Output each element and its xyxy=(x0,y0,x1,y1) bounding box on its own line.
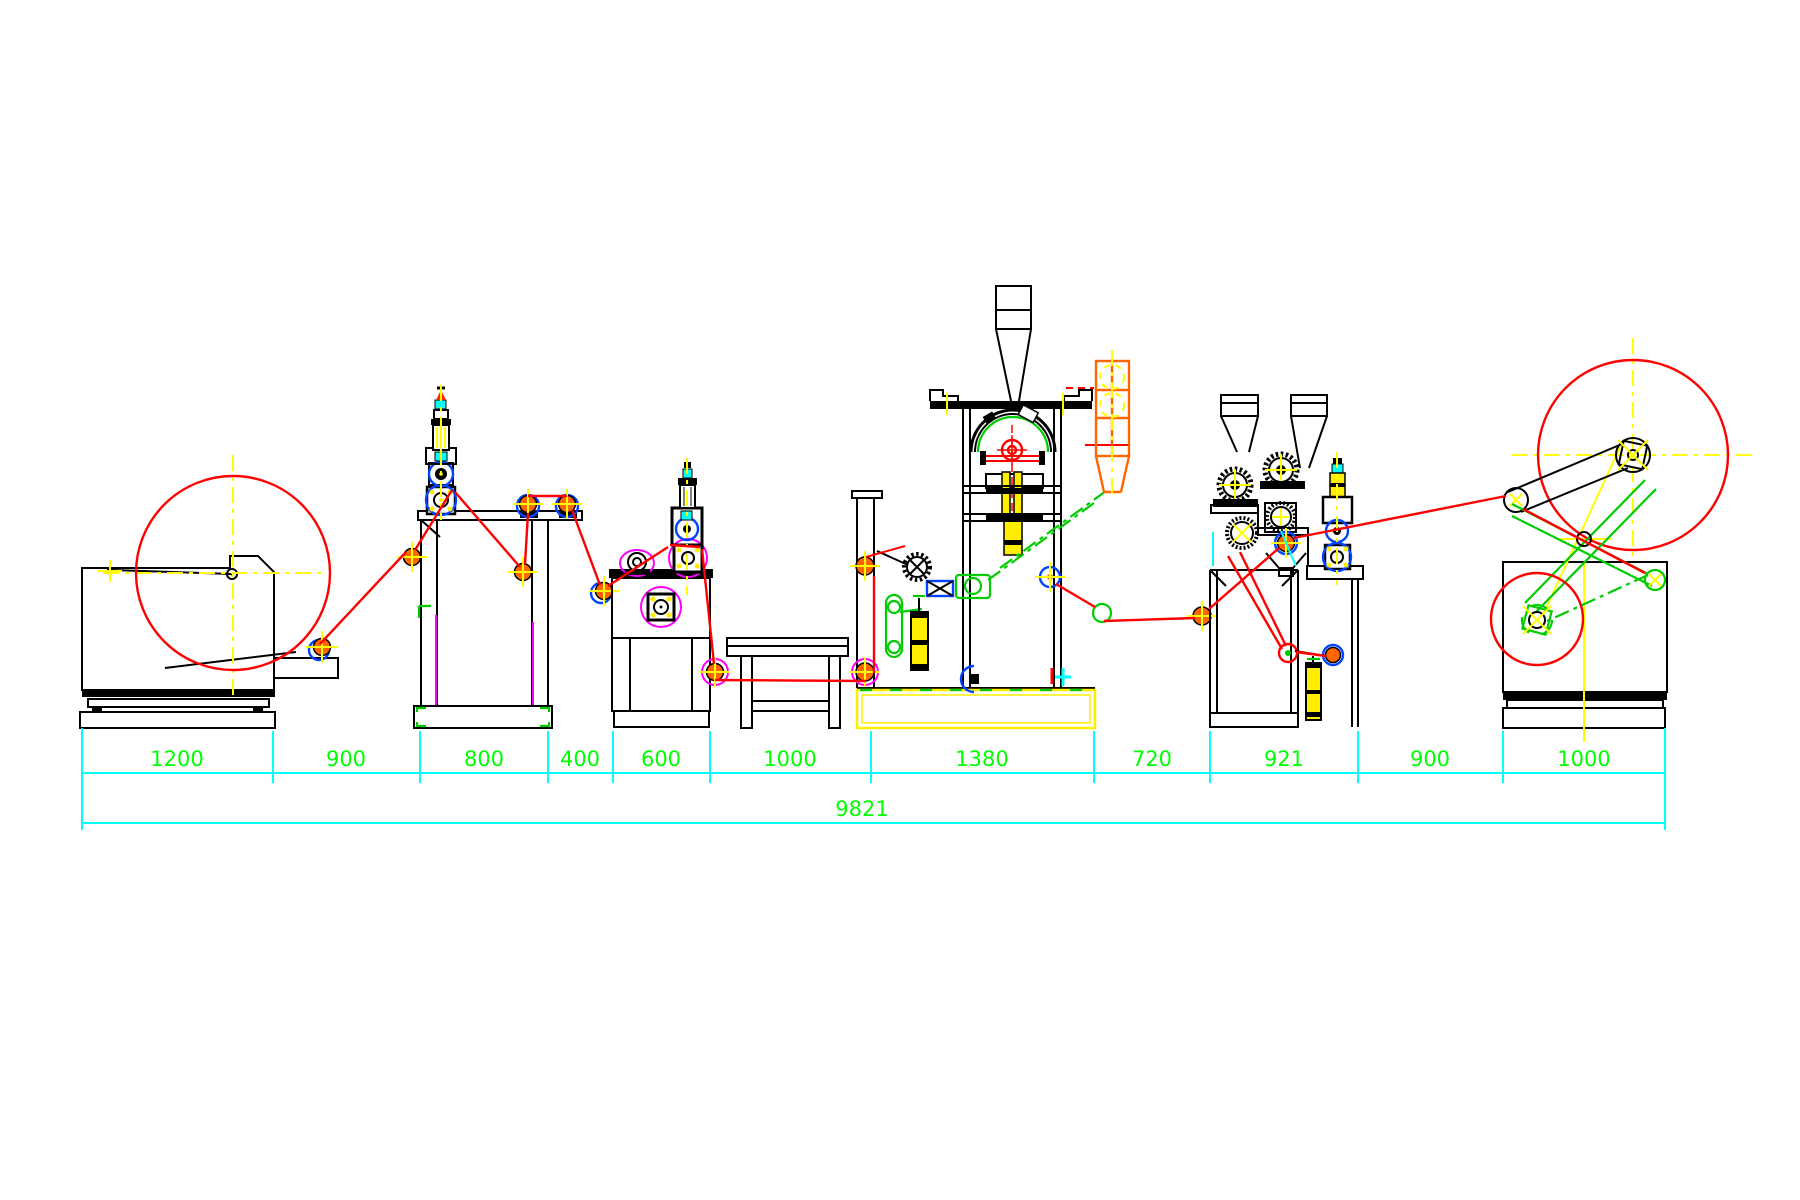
dim-label: 720 xyxy=(1132,747,1172,771)
extruder-motor-left xyxy=(1213,469,1258,507)
dim-label: 800 xyxy=(464,747,504,771)
dancer-mechanism xyxy=(886,595,928,670)
bag-forming-unit xyxy=(850,286,1128,728)
dim-label: 1200 xyxy=(150,747,203,771)
machine-base xyxy=(857,666,1095,728)
dim-label: 900 xyxy=(326,747,366,771)
dim-label: 1380 xyxy=(955,747,1008,771)
roller xyxy=(552,489,582,519)
roller xyxy=(850,657,880,687)
dim-label: 900 xyxy=(1410,747,1450,771)
turret-linkage xyxy=(1512,480,1665,622)
dim-label: 400 xyxy=(560,747,600,771)
dim-label: 1000 xyxy=(1557,747,1610,771)
roller xyxy=(700,657,730,687)
production-line-drawing: 1200 900 800 400 600 1000 1380 720 921 9… xyxy=(0,0,1800,1200)
corona-treater-frame xyxy=(397,385,619,728)
web-path xyxy=(320,490,1645,681)
dim-label: 1000 xyxy=(763,747,816,771)
hopper-left xyxy=(1221,395,1258,452)
dim-label: 600 xyxy=(641,747,681,771)
dimension-layer: 1200 900 800 400 600 1000 1380 720 921 9… xyxy=(82,728,1665,830)
drive-station xyxy=(866,546,990,598)
unwinder-machine xyxy=(80,455,338,728)
winder-machine xyxy=(1491,338,1758,742)
winding-dancer xyxy=(1279,644,1343,720)
coating-unit xyxy=(609,458,730,727)
hopper xyxy=(996,286,1031,409)
winder-spindle xyxy=(1616,438,1650,472)
cad-drawing-page: 1200 900 800 400 600 1000 1380 720 921 9… xyxy=(0,0,1800,1200)
roller xyxy=(850,551,880,581)
gear-wheel xyxy=(1227,518,1257,548)
total-dim-label: 9821 xyxy=(835,797,888,821)
infeed-frame xyxy=(850,491,882,688)
support-table xyxy=(727,638,848,728)
guide-ring xyxy=(1093,604,1111,622)
unwind-platform xyxy=(274,658,338,678)
corona-tower xyxy=(426,385,456,520)
dim-label: 921 xyxy=(1264,747,1304,771)
hopper-right xyxy=(1291,395,1327,468)
empty-core-spindle xyxy=(1491,573,1583,665)
feeder-elevator xyxy=(1096,350,1129,500)
roller xyxy=(508,557,538,587)
